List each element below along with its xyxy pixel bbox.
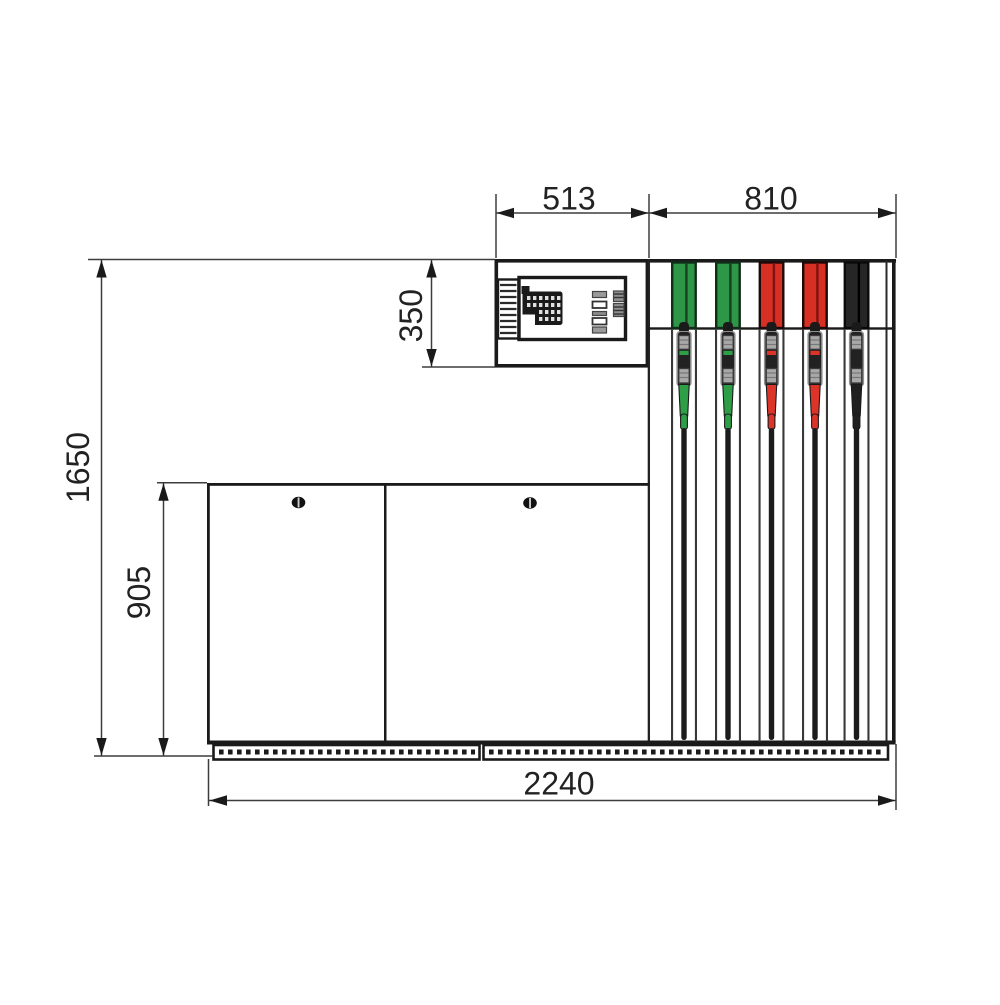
svg-text:905: 905 [121,566,157,619]
svg-text:513: 513 [542,181,595,217]
svg-text:810: 810 [744,181,797,217]
svg-text:350: 350 [393,289,429,342]
svg-text:2240: 2240 [523,766,594,802]
svg-text:1650: 1650 [60,432,96,503]
